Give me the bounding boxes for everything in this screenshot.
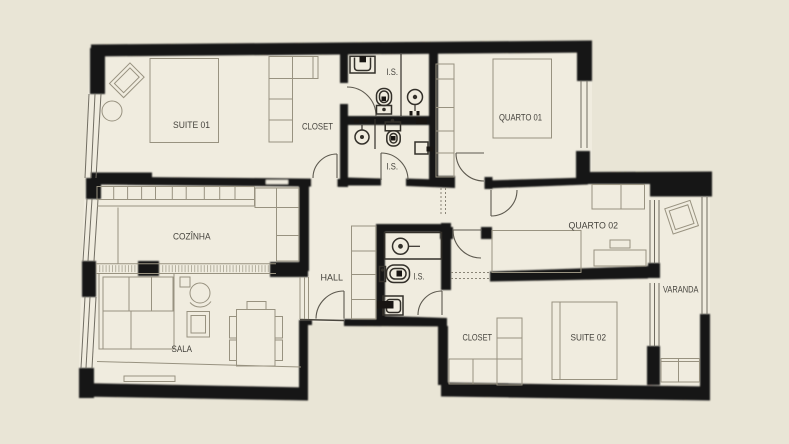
svg-text:QUARTO 01: QUARTO 01 (499, 113, 542, 124)
svg-text:COZÎNHA: COZÎNHA (173, 232, 211, 243)
svg-text:CLOSET: CLOSET (302, 122, 333, 133)
svg-text:HALL: HALL (321, 273, 344, 284)
svg-text:SUITE 02: SUITE 02 (571, 333, 607, 344)
svg-text:I.S.: I.S. (387, 162, 399, 173)
svg-text:I.S.: I.S. (387, 67, 399, 78)
svg-text:QUARTO 02: QUARTO 02 (569, 221, 619, 232)
svg-text:I.S.: I.S. (414, 272, 425, 283)
svg-text:SUITE 01: SUITE 01 (173, 120, 210, 131)
svg-text:CLOSET: CLOSET (463, 333, 493, 344)
svg-text:SALA: SALA (172, 344, 193, 355)
svg-text:VARANDA: VARANDA (663, 285, 699, 296)
